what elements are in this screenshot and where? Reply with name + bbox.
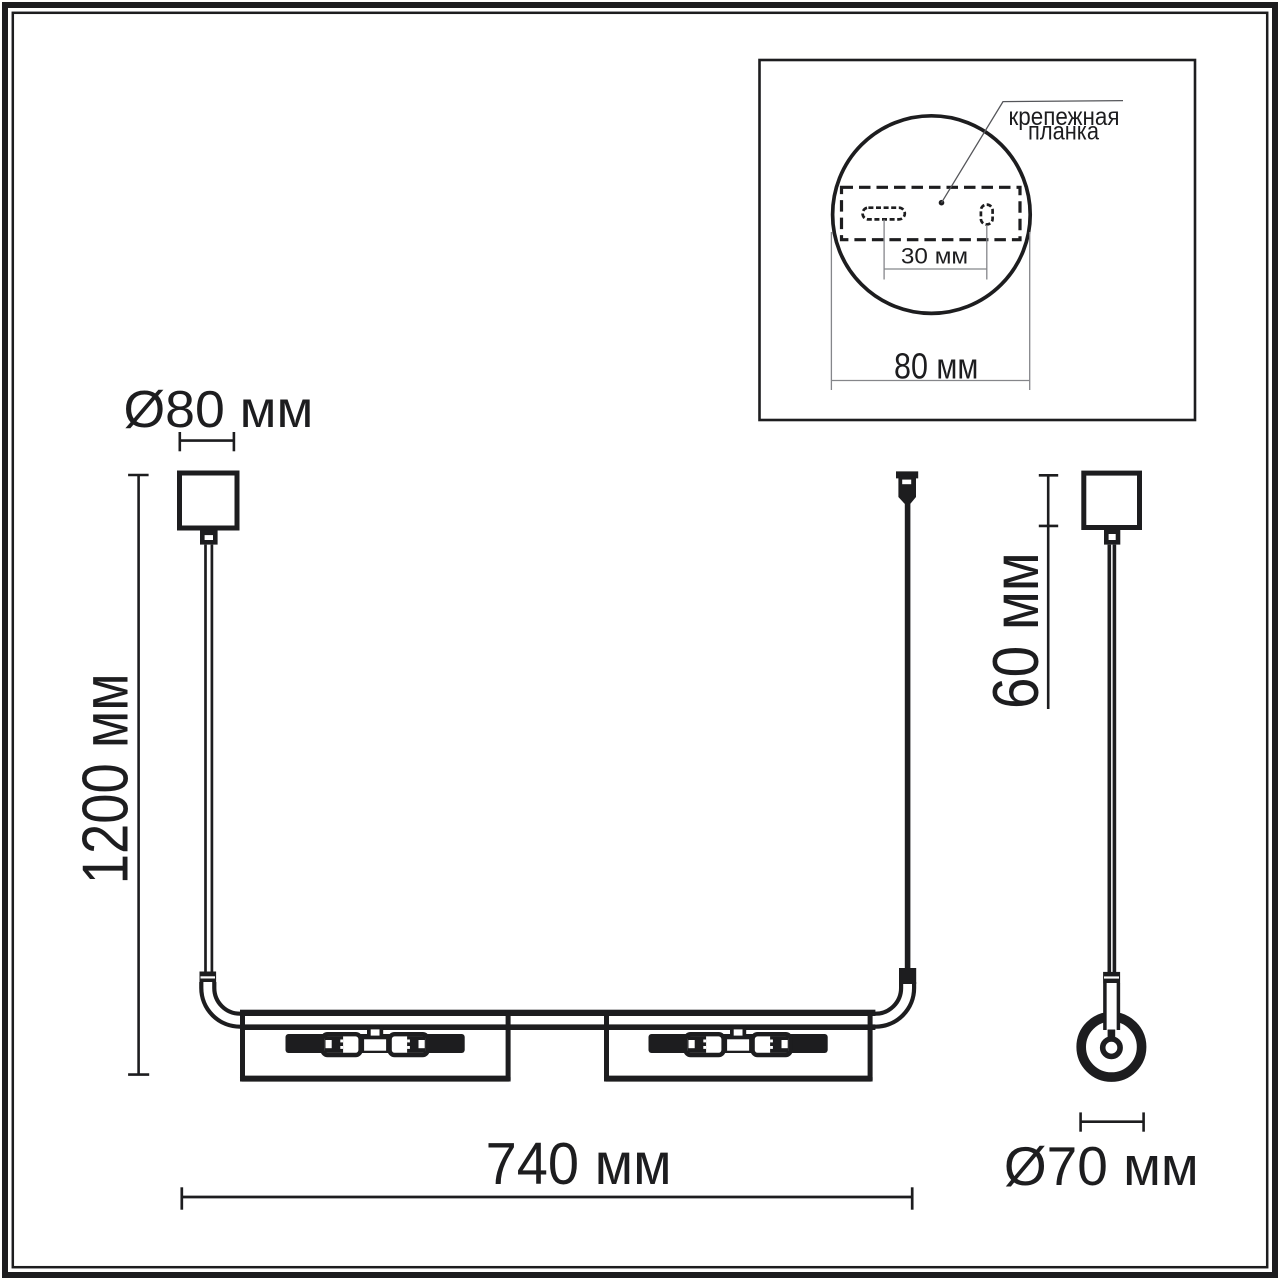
svg-text:Ø80 мм: Ø80 мм bbox=[123, 381, 313, 439]
svg-text:80 мм: 80 мм bbox=[894, 347, 978, 387]
svg-text:планка: планка bbox=[1028, 117, 1100, 145]
svg-text:1200 мм: 1200 мм bbox=[69, 673, 142, 884]
svg-text:60 мм: 60 мм bbox=[979, 552, 1051, 709]
svg-text:30 мм: 30 мм bbox=[901, 244, 968, 269]
svg-text:Ø70 мм: Ø70 мм bbox=[1004, 1135, 1199, 1197]
svg-text:740 мм: 740 мм bbox=[486, 1132, 672, 1198]
